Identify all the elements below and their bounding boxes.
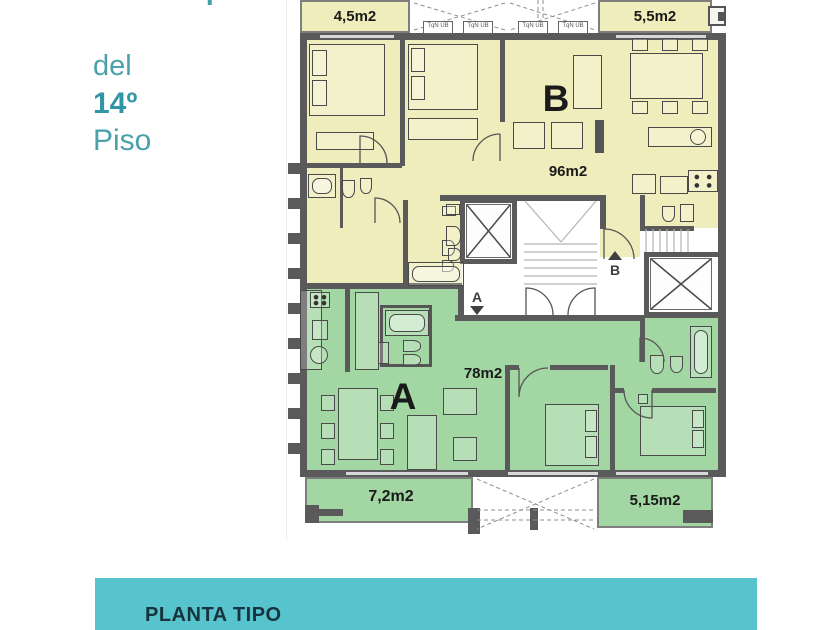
kitchen-sink-double	[312, 320, 328, 340]
stove	[688, 170, 718, 192]
clipped-title-text: Planta tipo	[93, 0, 283, 7]
apartment-b-laundry	[640, 195, 718, 228]
armchair	[513, 122, 545, 149]
dining-table	[630, 53, 703, 99]
chair	[380, 423, 394, 439]
pillow	[411, 48, 425, 72]
toilet	[342, 180, 355, 198]
stove	[310, 292, 330, 308]
ac-unit-mark	[718, 12, 724, 21]
bathtub	[385, 310, 429, 336]
wall-tab	[288, 163, 300, 174]
kitchen-sink	[310, 346, 328, 364]
armchair	[551, 122, 583, 149]
bathtub	[408, 262, 464, 286]
balcony-post	[319, 509, 343, 516]
bathtub-basin	[694, 330, 708, 374]
wall-tab	[288, 443, 300, 454]
apartment-a-letter: A	[373, 376, 433, 418]
wall-tab	[288, 338, 300, 349]
floor-plan: TqN UB TqN UB TqN UB TqN UB 4,5m2 5,5m2 …	[286, 0, 740, 540]
wall-left	[300, 33, 307, 477]
kitchen-cabinet	[355, 292, 379, 370]
tv-cabinet	[595, 120, 604, 153]
chair	[321, 395, 335, 411]
patio-unit-box: TqN UB	[558, 21, 588, 34]
wall-right	[718, 33, 726, 477]
wall-core-bottom	[455, 315, 645, 321]
wall-tab	[288, 233, 300, 244]
subtitle-floor-number: 14º	[93, 87, 213, 121]
elevator2-car	[650, 258, 712, 310]
entrance-b-label: B	[602, 262, 628, 278]
bench	[316, 132, 374, 150]
armchair	[443, 388, 477, 415]
bathtub-basin	[412, 266, 460, 282]
bidet	[670, 356, 683, 373]
wall-top	[300, 33, 718, 40]
chair	[662, 101, 678, 114]
pillow	[692, 410, 704, 428]
chair	[692, 38, 708, 51]
wall-laundry-left	[640, 195, 645, 228]
patio-unit-box: TqN UB	[423, 21, 453, 34]
washer	[680, 204, 694, 222]
wall-bedrooms-b	[400, 36, 405, 166]
pillow	[312, 80, 327, 106]
sink	[446, 204, 460, 215]
chair	[380, 449, 394, 465]
balcony-post	[683, 510, 713, 523]
footer-bar: PLANTA TIPO	[95, 578, 757, 630]
wall-bath-a2-bottom	[652, 388, 716, 393]
wall-stair-kitchen	[600, 195, 606, 229]
bathtub	[308, 174, 336, 198]
balcony-top-right-label: 5,5m2	[598, 8, 712, 25]
pillow	[585, 410, 597, 432]
balcony-top-left-label: 4,5m2	[300, 8, 410, 25]
apartment-b-area: 96m2	[533, 163, 603, 180]
bidet	[448, 248, 461, 261]
wall-bath-b1-top	[300, 163, 402, 168]
chair	[632, 38, 648, 51]
elevator1-car	[466, 204, 511, 258]
toilet	[446, 226, 461, 246]
chair	[321, 449, 335, 465]
wall-tab	[288, 198, 300, 209]
subtitle-del: del	[93, 50, 213, 83]
clipped-title: Planta tipo	[93, 0, 283, 7]
patio-unit-box: TqN UB	[518, 21, 548, 34]
wall-tab	[288, 303, 300, 314]
kitchen-sink	[690, 129, 706, 145]
toilet	[662, 206, 675, 222]
wall-bath-a2-bottom	[610, 388, 624, 393]
side-table	[453, 437, 477, 461]
kitchen-cabinet	[632, 174, 656, 194]
wall-bath-a2-left	[640, 318, 645, 362]
wardrobe	[408, 118, 478, 140]
elevator2-wall-top	[644, 252, 718, 257]
bidet	[403, 354, 421, 366]
entrance-a-label: A	[464, 289, 490, 305]
bathtub-basin	[312, 178, 332, 194]
elevator1-wall-top	[460, 198, 517, 203]
patio-unit-box: TqN UB	[463, 21, 493, 34]
nightstand	[638, 394, 648, 404]
bath-cabinet	[378, 342, 389, 364]
chair	[321, 423, 335, 439]
pillow	[411, 76, 425, 100]
wall-tab	[288, 408, 300, 419]
balcony-post	[305, 505, 319, 523]
elevator2-wall-left	[644, 252, 649, 318]
chair	[692, 101, 708, 114]
elevator2-wall-bottom	[644, 312, 718, 318]
footer-title: PLANTA TIPO	[145, 604, 405, 627]
pillow	[692, 430, 704, 448]
wall-bedroom-mid-top	[550, 365, 608, 370]
entrance-b-arrow-icon	[608, 251, 622, 260]
wall-bedrooms-a	[610, 365, 615, 477]
pillow	[585, 436, 597, 458]
wall-laundry-bottom	[640, 226, 694, 231]
subtitle-piso: Piso	[93, 124, 213, 158]
balcony-post	[530, 508, 538, 530]
kitchen-cabinet	[660, 176, 688, 194]
page: Planta tipo del 14º Piso	[0, 0, 840, 630]
apartment-b-letter: B	[526, 78, 586, 120]
pillow	[312, 50, 327, 76]
balcony-bottom-right-label: 5,15m2	[597, 492, 713, 509]
bathtub-basin	[389, 314, 425, 332]
wall-bedroom2-living	[500, 36, 505, 122]
toilet	[360, 178, 372, 194]
toilet	[650, 355, 664, 374]
chair	[662, 38, 678, 51]
wall-kitchen-a	[345, 286, 350, 372]
wall-bath-b1-mid	[340, 168, 343, 228]
entrance-a-arrow-icon	[470, 306, 484, 315]
dining-table	[338, 388, 378, 460]
bathtub	[690, 326, 712, 378]
balcony-post	[468, 508, 480, 534]
elevator1-wall-bottom	[460, 259, 517, 264]
apartment-a-area: 78m2	[448, 365, 518, 382]
balcony-bottom-left-label: 7,2m2	[331, 488, 451, 506]
elevator1-wall-right	[512, 198, 517, 264]
left-column: Planta tipo del 14º Piso	[0, 0, 286, 578]
apartment-b-hall	[600, 195, 640, 257]
toilet	[403, 340, 421, 352]
chair	[632, 101, 648, 114]
wall-tab	[288, 268, 300, 279]
wall-tab	[288, 373, 300, 384]
sofa	[407, 415, 437, 470]
